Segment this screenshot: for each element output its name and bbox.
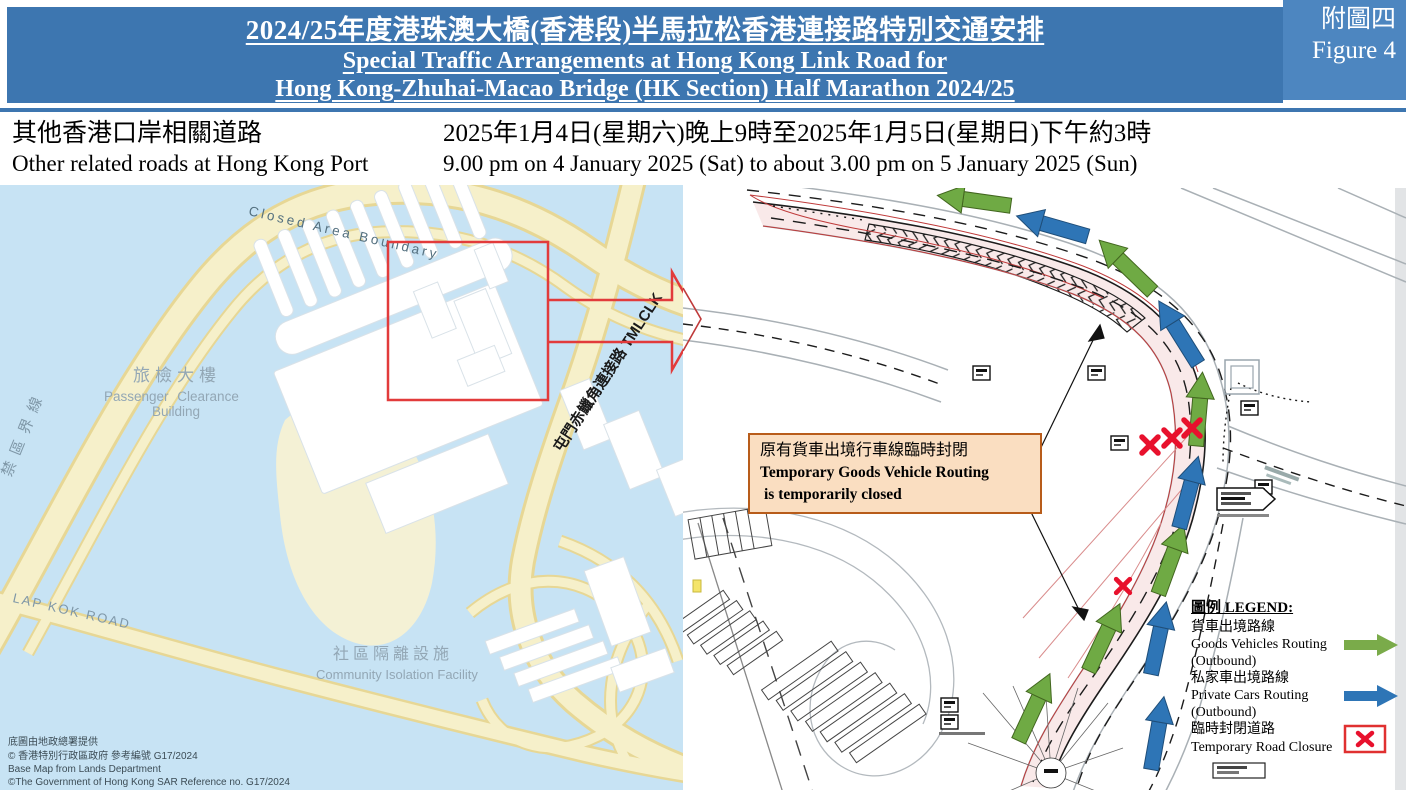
figure-label-en: Figure 4 xyxy=(1283,35,1396,66)
legend-private-en: Private Cars Routing xyxy=(1191,687,1343,704)
subtitle-period-zh: 2025年1月4日(星期六)晚上9時至2025年1月5日(星期日)下午約3時 xyxy=(443,118,1151,149)
private-cars-routing-arrow-icon xyxy=(1343,683,1399,709)
pcb-label-en1: Passenger Clearance xyxy=(104,389,239,404)
traffic-sign-icon xyxy=(973,366,990,380)
legend-private-zh: 私家車出境路線 xyxy=(1191,670,1343,687)
pcb-label-zh: 旅檢大樓 xyxy=(133,366,221,385)
goods-routing-arrow-icon xyxy=(1343,632,1399,658)
legend-goods-sub: (Outbound) xyxy=(1191,653,1343,670)
legend-bottom-sign xyxy=(1213,763,1265,778)
subtitle-roads-zh: 其他香港口岸相關道路 xyxy=(12,118,368,149)
callout-line-en1: Temporary Goods Vehicle Routing xyxy=(760,462,1032,484)
legend-goods-zh: 貨車出境路線 xyxy=(1191,619,1343,636)
header-title-en2: Hong Kong-Zhuhai-Macao Bridge (HK Sectio… xyxy=(275,76,1014,103)
legend-goods-en: Goods Vehicles Routing xyxy=(1191,636,1343,653)
subtitle-period-en: 9.00 pm on 4 January 2025 (Sat) to about… xyxy=(443,149,1151,179)
traffic-sign-icon xyxy=(1111,436,1128,450)
legend: 圖例 LEGEND: 貨車出境路線 Goods Vehicles Routing… xyxy=(1191,596,1406,756)
callout-line-zh: 原有貨車出境行車線臨時封閉 xyxy=(760,440,1032,462)
header-title-en1: Special Traffic Arrangements at Hong Kon… xyxy=(343,48,947,75)
copyright-line: Base Map from Lands Department xyxy=(8,764,161,775)
road-closure-icon xyxy=(1343,724,1387,754)
traffic-sign-icon xyxy=(941,715,958,729)
copyright-line: ©The Government of Hong Kong SAR Referen… xyxy=(8,777,290,788)
subtitle-roads-en: Other related roads at Hong Kong Port xyxy=(12,149,368,179)
copyright-line: © 香港特別行政區政府 參考編號 G17/2024 xyxy=(8,749,198,762)
legend-item-closure: 臨時封閉道路 Temporary Road Closure xyxy=(1191,721,1406,755)
legend-closure-zh: 臨時封閉道路 xyxy=(1191,721,1343,738)
callout-line-en2: is temporarily closed xyxy=(760,484,1032,506)
figure-label-box: 附圖四 Figure 4 xyxy=(1283,0,1406,100)
subtitle-period: 2025年1月4日(星期六)晚上9時至2025年1月5日(星期日)下午約3時 9… xyxy=(443,118,1151,179)
figure-page: 2024/25年度港珠澳大橋(香港段)半馬拉松香港連接路特別交通安排 Speci… xyxy=(0,0,1406,790)
base-map: Closed Area Boundary 禁區界線 旅檢大樓 Passenger… xyxy=(0,185,683,790)
legend-item-goods: 貨車出境路線 Goods Vehicles Routing (Outbound) xyxy=(1191,619,1406,670)
header-divider xyxy=(0,108,1406,112)
legend-title: 圖例 LEGEND: xyxy=(1191,596,1406,617)
cif-label-zh: 社區隔離設施 xyxy=(333,645,453,663)
copyright-line: 底圖由地政總署提供 xyxy=(8,735,98,748)
cif-label-en: Community Isolation Facility xyxy=(316,667,478,682)
traffic-sign-icon xyxy=(1241,401,1258,415)
legend-closure-en: Temporary Road Closure xyxy=(1191,739,1343,756)
legend-item-private: 私家車出境路線 Private Cars Routing (Outbound) xyxy=(1191,670,1406,721)
traffic-sign-icon xyxy=(941,698,958,712)
figure-label-zh: 附圖四 xyxy=(1283,4,1396,35)
header-title-zh: 2024/25年度港珠澳大橋(香港段)半馬拉松香港連接路特別交通安排 xyxy=(246,8,1044,47)
legend-private-sub: (Outbound) xyxy=(1191,704,1343,721)
subtitle-roads: 其他香港口岸相關道路 Other related roads at Hong K… xyxy=(12,118,368,179)
header-title-box: 2024/25年度港珠澳大橋(香港段)半馬拉松香港連接路特別交通安排 Speci… xyxy=(7,7,1283,103)
pcb-label-en2: Building xyxy=(152,404,200,419)
traffic-sign-icon xyxy=(1088,366,1105,380)
closure-callout-box: 原有貨車出境行車線臨時封閉 Temporary Goods Vehicle Ro… xyxy=(748,433,1042,514)
